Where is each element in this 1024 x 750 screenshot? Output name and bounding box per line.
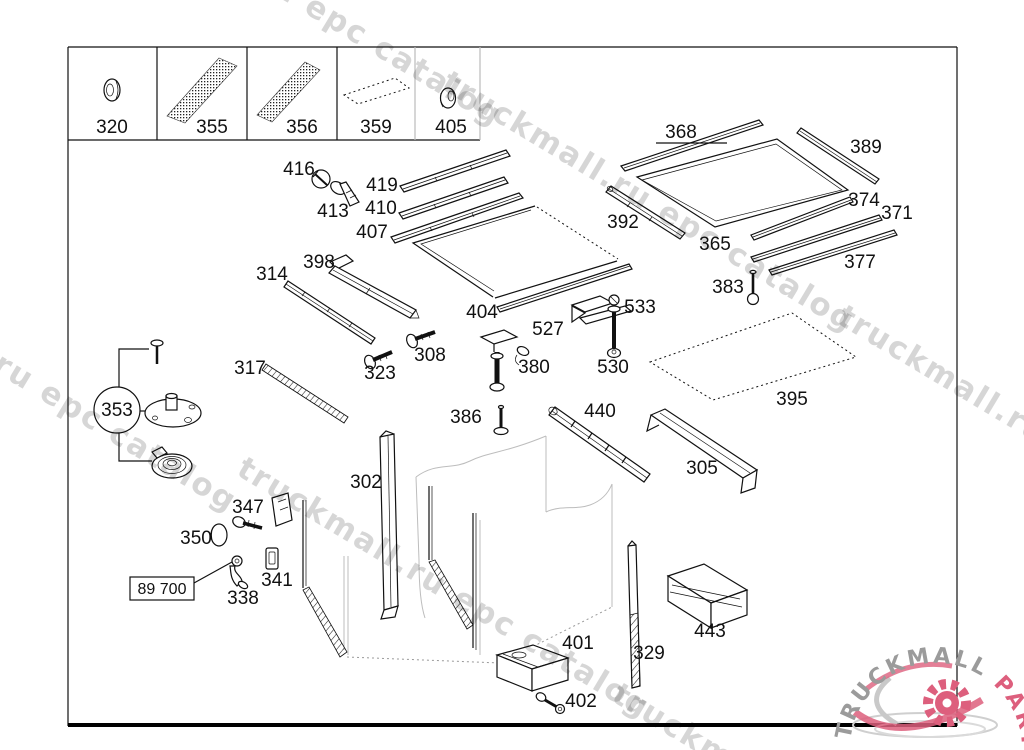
part-label-320: 320	[96, 117, 128, 138]
part-label-530: 530	[597, 357, 629, 378]
part-350-cap	[211, 524, 227, 546]
part-329-strip	[628, 541, 640, 688]
part-label-350: 350	[180, 528, 212, 549]
part-label-317: 317	[234, 358, 266, 379]
part-label-440: 440	[584, 401, 616, 422]
part-305-channel	[647, 409, 757, 493]
part-label-374: 374	[848, 190, 880, 211]
part-label-302: 302	[350, 472, 382, 493]
part-label-329: 329	[633, 643, 665, 664]
part-label-443: 443	[694, 621, 726, 642]
part-386-screw	[494, 406, 508, 435]
parts-catalog-diagram: 320 355 356 359 405 368 389 416 419 413 …	[0, 0, 1024, 750]
part-label-416: 416	[283, 159, 315, 180]
part-label-323: 323	[364, 363, 396, 384]
part-label-355: 355	[196, 117, 228, 138]
part-label-419: 419	[366, 175, 398, 196]
part-label-314: 314	[256, 264, 288, 285]
part-402-screw	[535, 691, 565, 713]
grommet-320-icon	[104, 79, 120, 101]
part-label-527: 527	[532, 319, 564, 340]
exploded-parts-drawing: 320 355 356 359 405 368 389 416 419 413 …	[0, 0, 1024, 750]
part-label-347: 347	[232, 497, 264, 518]
watermark-text: truckmall.ru epc catalog	[0, 244, 244, 520]
reference-label-89700: 89 700	[138, 581, 187, 598]
part-label-398: 398	[303, 252, 335, 273]
mesh-panel-355-icon	[167, 58, 237, 123]
part-label-338: 338	[227, 588, 259, 609]
part-label-389: 389	[850, 137, 882, 158]
part-label-410: 410	[365, 198, 397, 219]
part-label-413: 413	[317, 201, 349, 222]
part-398-channel	[329, 255, 419, 318]
watermark-text: truckmall.ru epc catalog	[83, 0, 509, 134]
mesh-panel-356-icon	[257, 62, 320, 122]
part-label-392: 392	[607, 212, 639, 233]
part-label-395: 395	[776, 389, 808, 410]
flat-panel-359-icon	[344, 78, 409, 104]
part-530-bolt	[608, 312, 621, 358]
part-label-368: 368	[665, 122, 697, 143]
part-label-380: 380	[518, 357, 550, 378]
part-533-bolt	[608, 295, 620, 312]
part-label-356: 356	[286, 117, 318, 138]
part-label-308: 308	[414, 345, 446, 366]
part-443-step	[668, 564, 747, 628]
part-338-clip	[230, 556, 249, 590]
watermark-layer: truckmall.ru epc catalog truckmall.ru ep…	[0, 0, 1024, 750]
part-label-533: 533	[624, 297, 656, 318]
part-label-377: 377	[844, 252, 876, 273]
part-317-strip	[262, 364, 348, 423]
part-302-pillar-strip	[380, 431, 398, 619]
watermark-text: truckmall.ru epc catalog	[231, 450, 657, 726]
part-label-371: 371	[881, 203, 913, 224]
part-label-386: 386	[450, 407, 482, 428]
part-341-plate	[266, 548, 278, 569]
part-label-383: 383	[712, 277, 744, 298]
part-label-407: 407	[356, 222, 388, 243]
part-label-359: 359	[360, 117, 392, 138]
part-527-bracket	[572, 296, 631, 324]
part-label-305: 305	[686, 458, 718, 479]
part-label-405: 405	[435, 117, 467, 138]
part-label-341: 341	[261, 570, 293, 591]
watermark-text: truckmall.ru epc catalog	[831, 298, 1024, 574]
part-label-404: 404	[466, 302, 498, 323]
